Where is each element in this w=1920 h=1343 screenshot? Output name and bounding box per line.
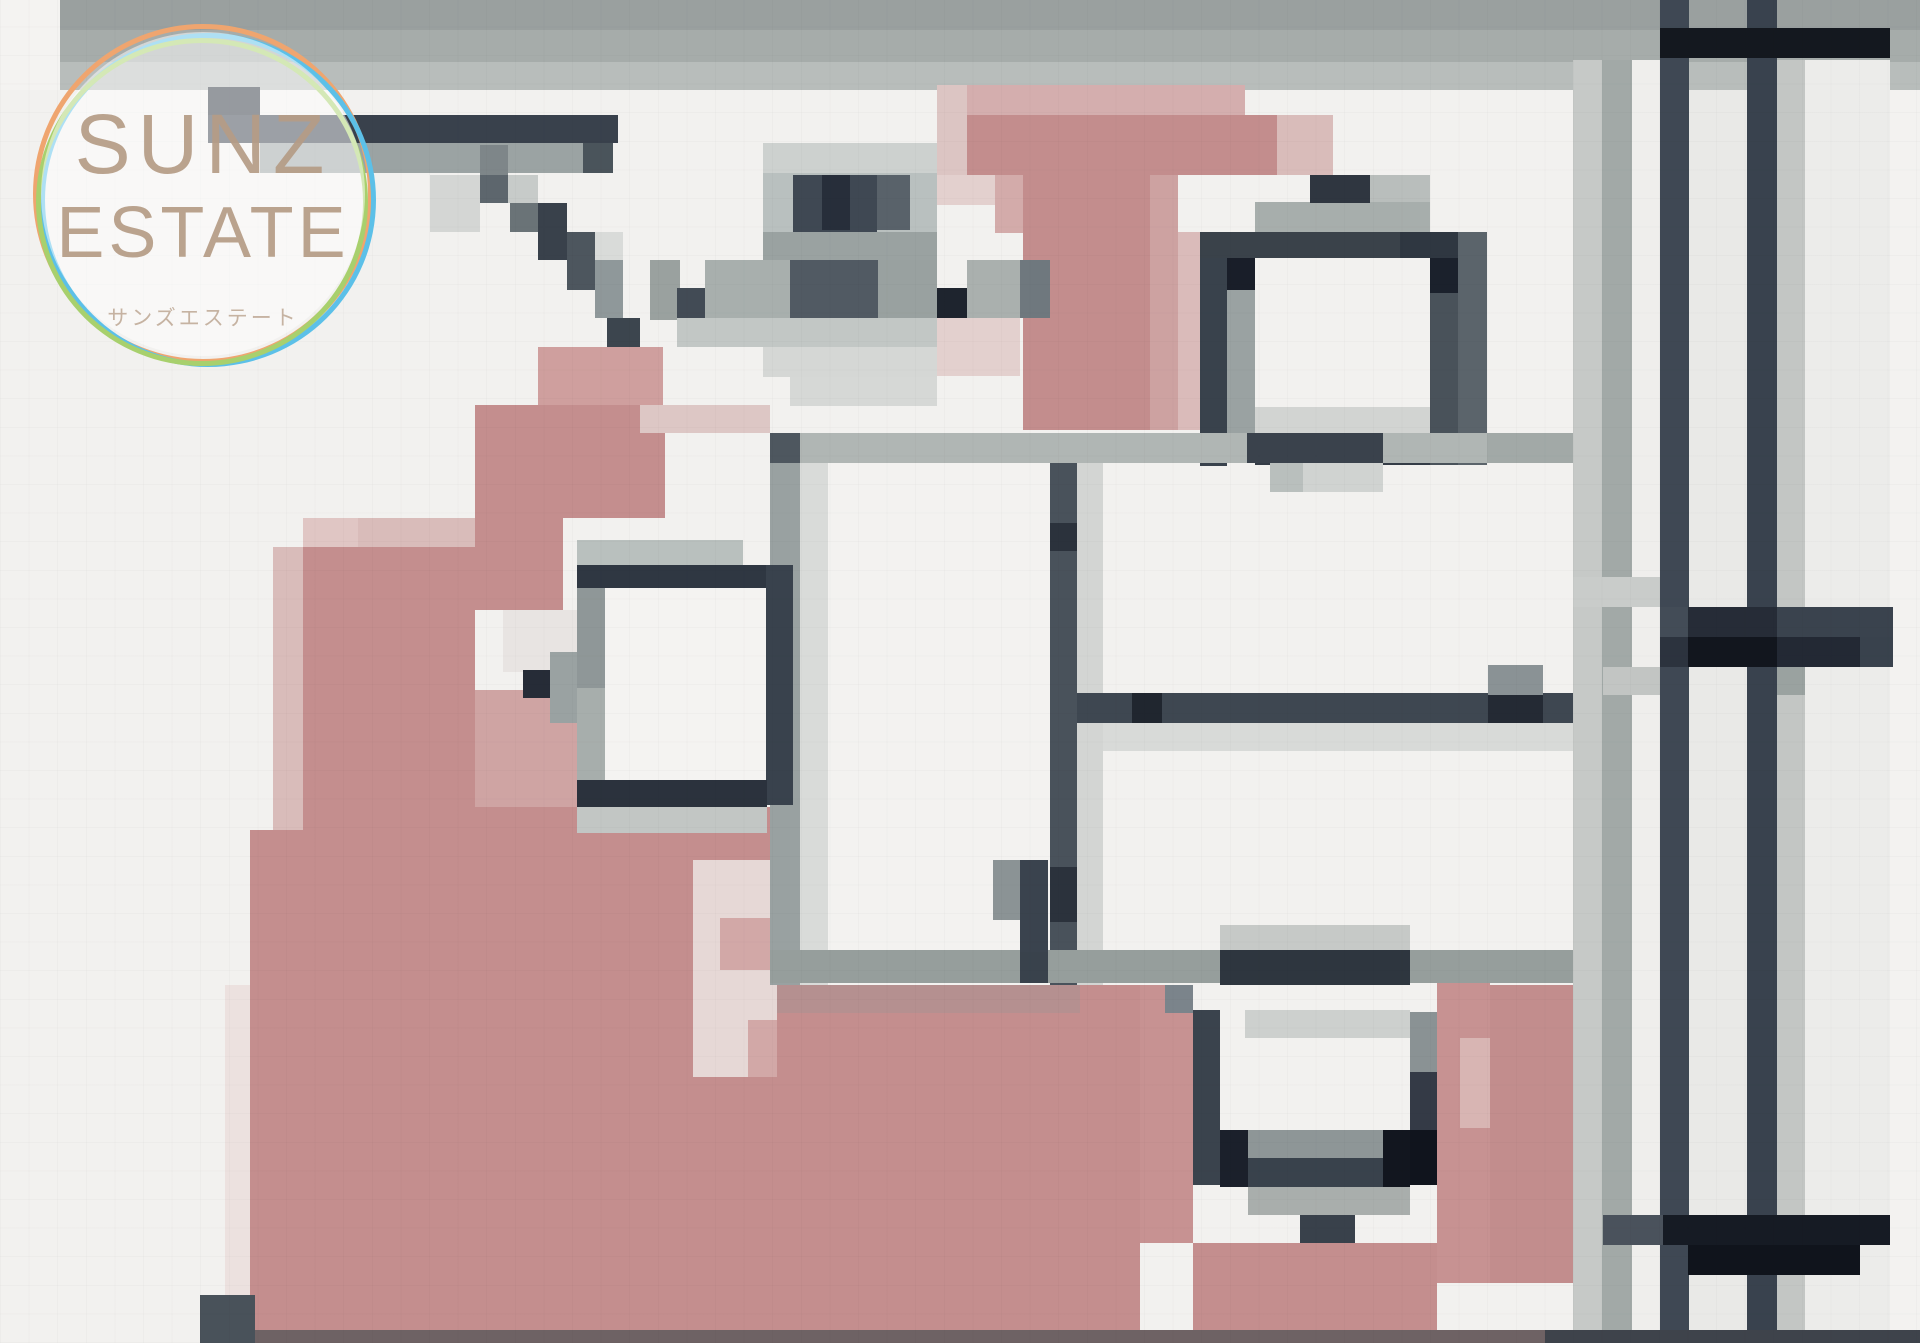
- pixel-block: [822, 175, 850, 230]
- pixel-block: [1248, 1158, 1383, 1187]
- pixel-block: [583, 143, 613, 173]
- pixel-block: [937, 288, 967, 318]
- pixel-block: [650, 260, 680, 320]
- pixel-block: [577, 688, 605, 780]
- pixel-block: [937, 318, 1020, 376]
- pixel-block: [770, 950, 1573, 983]
- pixel-block: [475, 518, 563, 610]
- pixel-block: [1410, 1012, 1437, 1072]
- pixel-block: [1660, 28, 1890, 58]
- pixel-block: [1193, 1010, 1220, 1185]
- logo-title-line2: ESTATE: [33, 192, 373, 274]
- pixel-block: [1603, 1215, 1663, 1245]
- pixel-block: [1410, 1130, 1437, 1185]
- logo-title-line1: SUNZ: [33, 96, 373, 193]
- pixel-block: [1103, 723, 1573, 751]
- pixel-block: [255, 1330, 1545, 1343]
- pixel-block: [508, 175, 538, 203]
- pixel-block: [1020, 260, 1050, 318]
- pixel-block: [763, 143, 937, 173]
- pixel-block: [358, 518, 475, 547]
- pixel-block: [763, 347, 937, 377]
- pixel-block: [1020, 950, 1048, 983]
- pixel-block: [1777, 607, 1893, 637]
- pixel-block: [1248, 1187, 1410, 1215]
- pixel-block: [1688, 607, 1777, 637]
- pixel-block: [538, 347, 663, 405]
- pixel-block: [967, 260, 1020, 318]
- pixel-block: [1660, 0, 1689, 1343]
- pixel-block: [1689, 90, 1747, 1343]
- pixel-block: [720, 918, 777, 970]
- pixel-block: [1458, 232, 1487, 465]
- pixel-block: [1603, 667, 1660, 695]
- pixel-block: [1663, 1215, 1890, 1245]
- pixel-block: [967, 85, 1245, 115]
- pixel-block: [640, 405, 770, 433]
- pixel-block: [993, 860, 1020, 920]
- pixel-block: [1245, 1038, 1410, 1130]
- pixel-block: [770, 433, 1573, 463]
- pixel-block: [1460, 1038, 1490, 1128]
- pixel-block: [877, 175, 910, 230]
- pixel-block: [1277, 115, 1333, 175]
- pixel-block: [523, 670, 551, 698]
- pixel-block: [1437, 983, 1490, 1283]
- pixel-block: [273, 547, 303, 830]
- pixel-block: [250, 830, 475, 985]
- pixel-block: [1220, 950, 1410, 985]
- pixel-block: [538, 203, 567, 260]
- pixel-block: [1247, 433, 1383, 463]
- pixel-block: [800, 463, 828, 985]
- pixel-block: [967, 115, 1277, 175]
- pixel-block: [1747, 0, 1777, 1343]
- pixel-block: [1200, 232, 1400, 258]
- pixel-block: [1050, 523, 1077, 551]
- pixel-block: [1255, 407, 1430, 435]
- pixel-block: [480, 145, 508, 175]
- pixel-block: [1573, 577, 1660, 607]
- pixel-block: [430, 175, 480, 232]
- pixel-block: [1255, 202, 1430, 232]
- pixel-block: [878, 260, 937, 318]
- pixel-block: [677, 318, 937, 347]
- pixel-block: [1193, 1243, 1437, 1330]
- pixel-block: [1488, 695, 1543, 723]
- floorplan-image: SUNZ ESTATE サンズエステート: [0, 0, 1920, 1343]
- pixel-block: [1020, 860, 1048, 952]
- pixel-block: [480, 175, 510, 203]
- pixel-block: [766, 565, 793, 805]
- pixel-block: [577, 588, 605, 688]
- pixel-block: [1165, 985, 1193, 1013]
- pixel-block: [763, 232, 937, 260]
- pixel-block: [1632, 60, 1660, 1343]
- pixel-block: [937, 175, 995, 205]
- pixel-block: [577, 540, 743, 565]
- pixel-block: [567, 232, 595, 290]
- pixel-block: [1860, 637, 1893, 667]
- pixel-block: [1890, 90, 1920, 1343]
- pixel-block: [1300, 1215, 1355, 1243]
- pixel-block: [705, 260, 790, 320]
- pixel-block: [1227, 290, 1255, 435]
- pixel-block: [1688, 637, 1777, 667]
- pixel-block: [550, 652, 577, 723]
- pixel-block: [200, 1295, 255, 1343]
- pixel-block: [1487, 433, 1573, 463]
- pixel-block: [937, 85, 967, 175]
- pixel-block: [225, 985, 250, 1330]
- pixel-block: [1150, 175, 1178, 430]
- pixel-block: [1777, 637, 1860, 667]
- pixel-block: [1227, 258, 1255, 290]
- pixel-block: [577, 780, 767, 807]
- pixel-block: [595, 260, 623, 318]
- pixel-block: [1490, 985, 1543, 1283]
- pixel-block: [1660, 637, 1688, 667]
- pixel-block: [1805, 60, 1890, 1343]
- pixel-block: [995, 175, 1025, 233]
- pixel-block: [1488, 665, 1543, 695]
- pixel-block: [607, 318, 640, 347]
- pixel-block: [577, 807, 767, 833]
- pixel-block: [1303, 463, 1383, 492]
- pixel-block: [1220, 925, 1410, 953]
- pixel-block: [1270, 463, 1303, 492]
- pixel-block: [790, 377, 937, 406]
- pixel-block: [1660, 607, 1688, 637]
- pixel-block: [1543, 985, 1573, 1283]
- pixel-block: [577, 565, 767, 588]
- pixel-block: [1777, 60, 1805, 1343]
- pixel-block: [1545, 1330, 1920, 1343]
- pixel-block: [1220, 1130, 1248, 1187]
- pixel-block: [475, 405, 665, 518]
- pixel-block: [1573, 60, 1602, 1343]
- pixel-block: [1383, 1130, 1410, 1187]
- pixel-block: [1430, 258, 1458, 293]
- pixel-block: [1777, 667, 1805, 695]
- pixel-block: [303, 518, 360, 547]
- logo-subtitle-japanese: サンズエステート: [33, 302, 373, 332]
- pixel-block: [595, 232, 623, 260]
- sunz-estate-logo: SUNZ ESTATE サンズエステート: [33, 24, 373, 364]
- pixel-block: [1688, 1245, 1860, 1275]
- pixel-block: [770, 433, 800, 463]
- pixel-block: [790, 260, 878, 318]
- pixel-block: [1165, 1013, 1193, 1213]
- pixel-block: [1077, 463, 1103, 985]
- pixel-block: [1310, 175, 1370, 203]
- pixel-block: [777, 985, 1080, 1013]
- pixel-block: [1370, 175, 1430, 202]
- pixel-block: [605, 588, 766, 780]
- pixel-block: [677, 288, 707, 320]
- pixel-block: [510, 203, 538, 232]
- pixel-block: [1245, 1010, 1410, 1038]
- pixel-block: [1410, 1072, 1437, 1130]
- pixel-block: [1255, 290, 1430, 407]
- pixel-block: [1602, 60, 1632, 1343]
- pixel-block: [1132, 693, 1162, 723]
- pixel-block: [1050, 867, 1077, 922]
- pixel-block: [748, 1020, 777, 1077]
